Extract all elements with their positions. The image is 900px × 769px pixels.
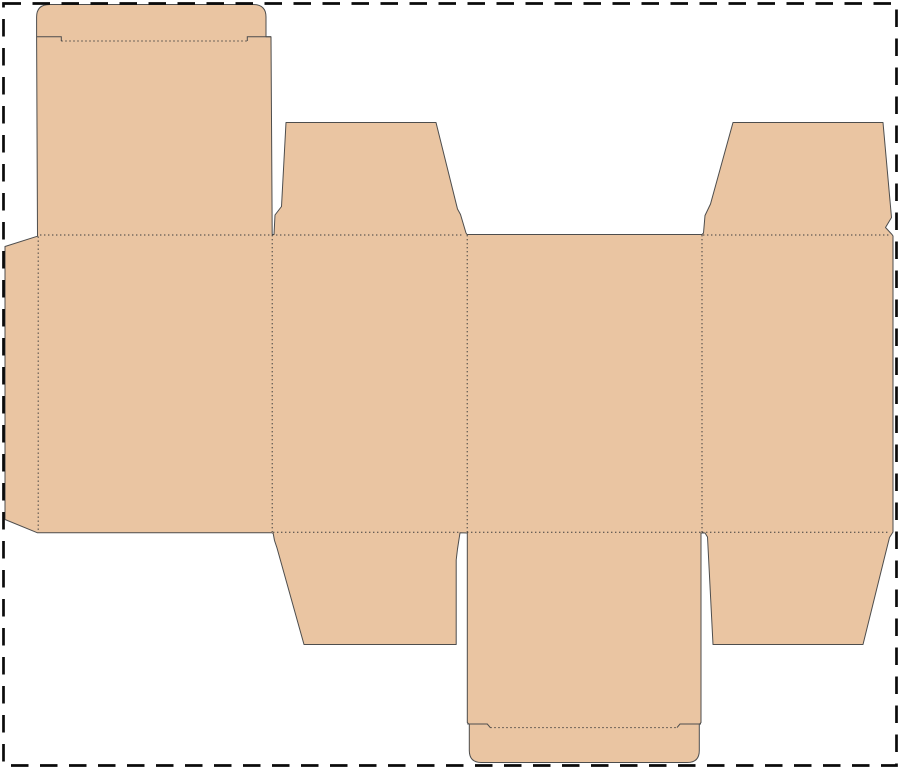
dieline-outline (5, 5, 893, 763)
dieline-canvas (0, 0, 900, 769)
box-dieline-drawing (0, 0, 900, 769)
